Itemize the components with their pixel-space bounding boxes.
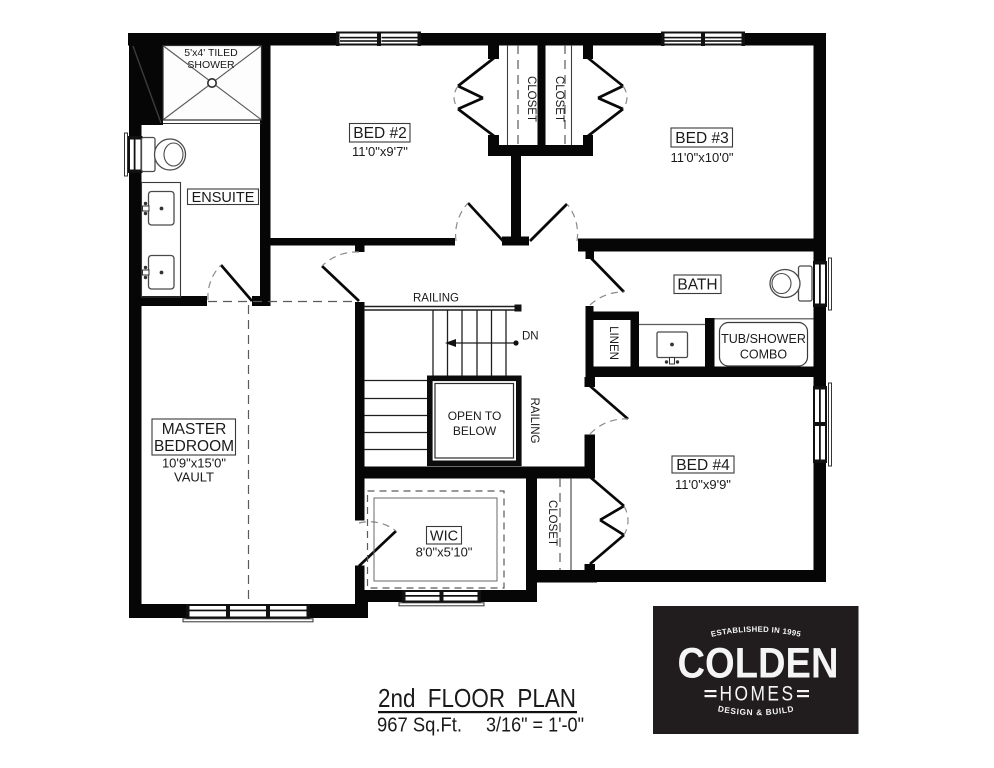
svg-text:8'0"x5'10": 8'0"x5'10" <box>416 545 473 560</box>
svg-text:LINEN: LINEN <box>607 326 619 360</box>
svg-text:WIC: WIC <box>430 529 458 545</box>
svg-text:11'0"x9'9": 11'0"x9'9" <box>675 477 731 492</box>
svg-text:CLOSET: CLOSET <box>553 76 565 122</box>
svg-text:TUB/SHOWER: TUB/SHOWER <box>721 332 806 346</box>
svg-text:VAULT: VAULT <box>174 470 214 485</box>
svg-text:967 Sq.Ft.: 967 Sq.Ft. <box>377 714 462 737</box>
svg-text:2nd FLOOR PLAN: 2nd FLOOR PLAN <box>378 683 576 713</box>
svg-text:DN: DN <box>522 331 539 343</box>
svg-text:COLDEN: COLDEN <box>678 640 839 688</box>
svg-text:5'x4' TILED: 5'x4' TILED <box>184 47 238 59</box>
svg-text:BEDROOM: BEDROOM <box>154 438 234 455</box>
svg-text:BATH: BATH <box>677 277 717 294</box>
svg-text:10'9"x15'0": 10'9"x15'0" <box>162 456 226 471</box>
svg-text:HOMES: HOMES <box>720 683 796 706</box>
svg-text:BELOW: BELOW <box>453 424 497 438</box>
svg-text:CLOSET: CLOSET <box>525 76 537 122</box>
svg-text:OPEN TO: OPEN TO <box>448 409 502 423</box>
svg-text:11'0"x10'0": 11'0"x10'0" <box>670 150 733 165</box>
svg-text:CLOSET: CLOSET <box>546 500 558 546</box>
svg-text:3/16" = 1'-0": 3/16" = 1'-0" <box>486 714 584 737</box>
svg-text:BED #3: BED #3 <box>675 130 728 147</box>
svg-text:RAILING: RAILING <box>528 397 540 443</box>
svg-text:RAILING: RAILING <box>413 293 459 305</box>
svg-text:MASTER: MASTER <box>162 421 227 438</box>
svg-text:BED #4: BED #4 <box>676 457 730 474</box>
svg-text:BED #2: BED #2 <box>353 125 406 142</box>
svg-text:11'0"x9'7": 11'0"x9'7" <box>352 144 408 159</box>
svg-text:SHOWER: SHOWER <box>187 59 235 71</box>
svg-text:ENSUITE: ENSUITE <box>192 190 255 206</box>
svg-text:COMBO: COMBO <box>740 348 788 362</box>
